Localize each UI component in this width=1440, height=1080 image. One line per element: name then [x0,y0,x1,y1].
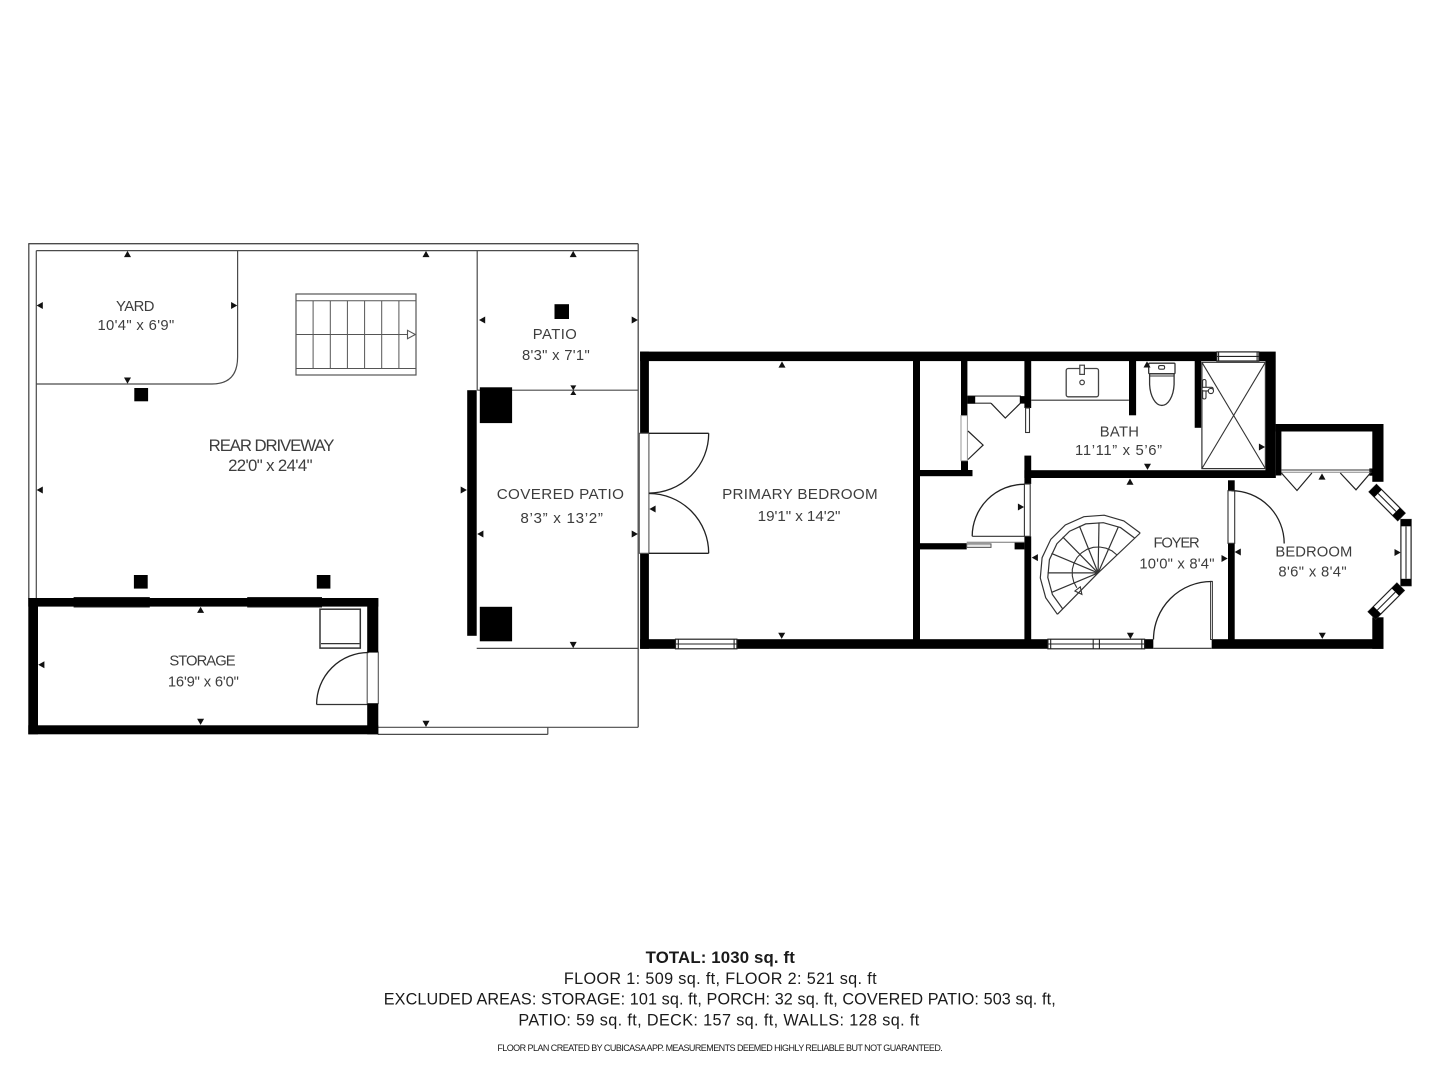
svg-text:FOYER: FOYER [1154,536,1199,552]
svg-text:TOTAL: 1030 sq. ft: TOTAL: 1030 sq. ft [646,948,796,967]
svg-text:8'3" x 7'1": 8'3" x 7'1" [522,348,590,364]
svg-text:COVERED PATIO: COVERED PATIO [497,486,625,503]
svg-text:8’3” x 13’2”: 8’3” x 13’2” [520,510,603,527]
svg-text:FLOOR PLAN CREATED BY CUBICASA: FLOOR PLAN CREATED BY CUBICASA APP. MEAS… [497,1043,942,1053]
svg-text:10'0" x 8'4": 10'0" x 8'4" [1139,557,1214,573]
svg-text:EXCLUDED AREAS: STORAGE: 101 s: EXCLUDED AREAS: STORAGE: 101 sq. ft, POR… [384,991,1056,1009]
svg-text:PATIO: 59 sq. ft, DECK: 157 sq: PATIO: 59 sq. ft, DECK: 157 sq. ft, WALL… [518,1012,919,1030]
svg-text:22'0" x 24'4": 22'0" x 24'4" [228,456,313,475]
svg-text:REAR DRIVEWAY: REAR DRIVEWAY [209,436,335,455]
svg-text:YARD: YARD [116,299,154,315]
svg-text:STORAGE: STORAGE [169,654,235,670]
svg-text:16'9" x 6'0": 16'9" x 6'0" [168,675,239,691]
svg-text:PRIMARY BEDROOM: PRIMARY BEDROOM [722,486,878,503]
svg-text:10'4" x 6'9": 10'4" x 6'9" [97,318,174,334]
svg-text:19'1" x 14'2": 19'1" x 14'2" [758,508,841,525]
svg-text:PATIO: PATIO [533,327,578,343]
svg-text:FLOOR 1: 509 sq. ft, FLOOR 2:: FLOOR 1: 509 sq. ft, FLOOR 2: 521 sq. ft [564,970,877,988]
svg-text:8'6" x 8'4": 8'6" x 8'4" [1278,565,1347,581]
svg-text:BATH: BATH [1100,425,1139,441]
svg-text:11’11” x 5’6”: 11’11” x 5’6” [1075,443,1163,459]
svg-text:BEDROOM: BEDROOM [1275,545,1352,561]
